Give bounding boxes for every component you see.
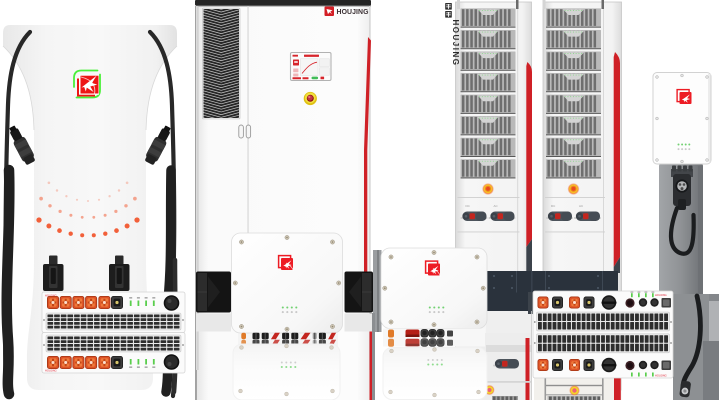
svg-text:HOUJING: HOUJING <box>337 9 369 16</box>
svg-text:HOUJING: HOUJING <box>45 369 57 373</box>
svg-text:HOUJING: HOUJING <box>451 20 460 67</box>
svg-text:HOUJING: HOUJING <box>655 374 667 378</box>
svg-text:HOUJING: HOUJING <box>655 293 667 297</box>
